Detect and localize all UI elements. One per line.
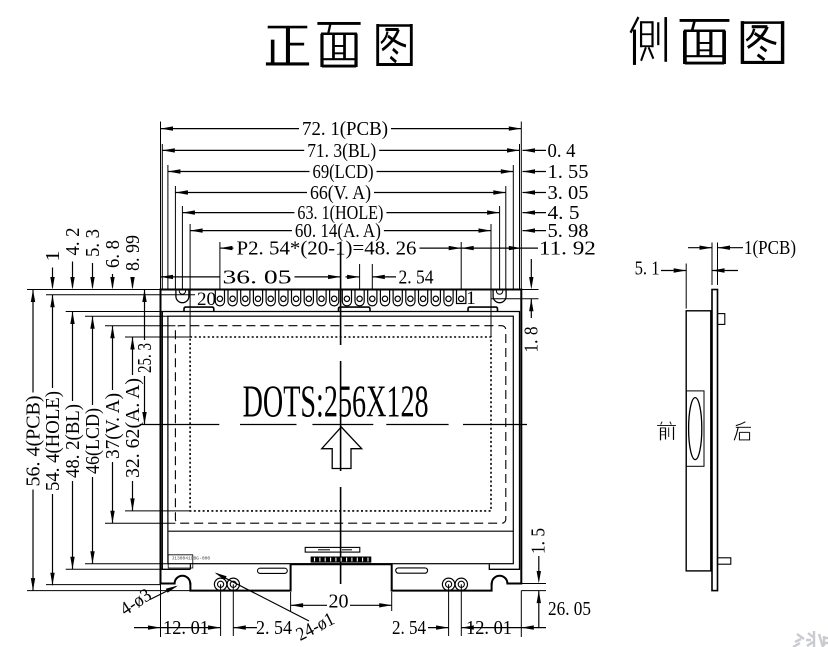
svg-text:32. 62(A. A): 32. 62(A. A) (122, 378, 144, 478)
svg-text:11. 92: 11. 92 (539, 238, 596, 260)
svg-text:DOTS:256X128: DOTS:256X128 (243, 377, 429, 427)
svg-text:5. 3: 5. 3 (82, 229, 104, 257)
svg-text:66(V. A): 66(V. A) (310, 182, 371, 204)
svg-text:1: 1 (466, 288, 476, 309)
svg-text:1: 1 (42, 251, 64, 262)
svg-text:3. 05: 3. 05 (548, 182, 589, 204)
svg-text:37(V. A): 37(V. A) (102, 393, 124, 459)
svg-text:69(LCD): 69(LCD) (313, 161, 374, 183)
svg-text:P2. 54*(20-1)=48. 26: P2. 54*(20-1)=48. 26 (237, 238, 417, 260)
svg-text:J1300419BG-000: J1300419BG-000 (172, 555, 211, 561)
svg-text:1(PCB): 1(PCB) (744, 237, 796, 259)
svg-text:26. 05: 26. 05 (548, 598, 591, 620)
svg-text:5. 1: 5. 1 (635, 258, 660, 280)
svg-text:2. 54: 2. 54 (392, 617, 426, 639)
svg-text:1. 8: 1. 8 (521, 327, 543, 353)
svg-text:0. 4: 0. 4 (548, 140, 576, 162)
svg-text:12. 01: 12. 01 (466, 617, 512, 639)
svg-text:2. 54: 2. 54 (399, 266, 434, 288)
svg-text:6. 8: 6. 8 (102, 240, 124, 268)
svg-text:20: 20 (329, 591, 349, 613)
svg-text:54. 4(HOLE): 54. 4(HOLE) (42, 391, 64, 491)
svg-text:8. 99: 8. 99 (122, 235, 144, 271)
svg-text:48. 2(BL): 48. 2(BL) (62, 404, 84, 478)
svg-text:1. 5: 1. 5 (528, 528, 550, 554)
svg-text:36. 05: 36. 05 (223, 266, 292, 288)
svg-text:12. 01: 12. 01 (163, 617, 209, 639)
svg-text:71. 3(BL): 71. 3(BL) (307, 140, 376, 162)
svg-text:2. 54: 2. 54 (256, 617, 292, 639)
svg-text:72. 1(PCB): 72. 1(PCB) (302, 118, 388, 140)
svg-text:1. 55: 1. 55 (548, 161, 589, 183)
svg-text:46(LCD): 46(LCD) (82, 408, 104, 474)
svg-text:25. 3: 25. 3 (134, 343, 156, 373)
svg-text:4. 2: 4. 2 (62, 228, 84, 256)
